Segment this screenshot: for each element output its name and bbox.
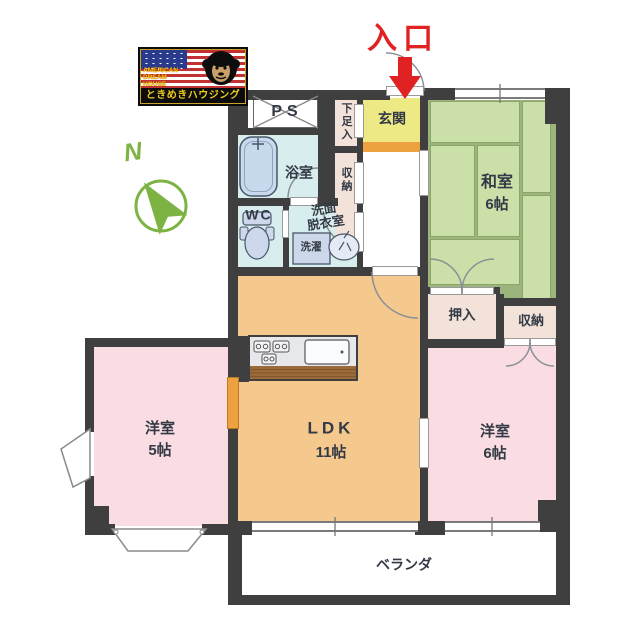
western6-door bbox=[419, 418, 429, 468]
genkan-label: 玄関 bbox=[378, 111, 406, 126]
wall bbox=[420, 339, 504, 348]
entrance-label: 入口 bbox=[367, 23, 439, 56]
wall bbox=[420, 196, 428, 295]
wall bbox=[538, 500, 556, 532]
wall bbox=[556, 521, 570, 605]
window-ldk-veranda bbox=[252, 521, 418, 532]
washitsu-size: 6帖 bbox=[485, 197, 508, 214]
genkan-step bbox=[359, 142, 420, 152]
wc-label: WC bbox=[245, 207, 272, 222]
storage-door-right bbox=[530, 338, 556, 346]
western5-label: 洋室 bbox=[145, 421, 175, 438]
ldk-size: 11帖 bbox=[316, 445, 347, 462]
wall bbox=[335, 146, 357, 153]
wall bbox=[238, 336, 249, 382]
western5-size: 5帖 bbox=[148, 443, 171, 460]
wall bbox=[496, 298, 570, 306]
wall bbox=[420, 96, 428, 150]
flag-text-line: HOUSE bbox=[143, 81, 166, 88]
wall bbox=[228, 90, 238, 535]
floor-plan: 入口 N PS 浴室 下足入 収納 玄関 WC 洗面 脱衣室 洗濯 和室 6帖 … bbox=[0, 0, 640, 640]
gorilla-mascot-icon bbox=[197, 50, 243, 88]
wc-door bbox=[282, 210, 289, 238]
window-western6-veranda bbox=[445, 521, 540, 532]
wall bbox=[85, 338, 238, 347]
oshiire-door-left bbox=[430, 287, 462, 295]
wall bbox=[556, 118, 570, 532]
ldk-label: LDK bbox=[308, 420, 355, 439]
hall-storage-door bbox=[354, 162, 364, 204]
storage-door-left bbox=[504, 338, 530, 346]
agency-name-band: ときめきハウジング bbox=[141, 89, 245, 103]
wall bbox=[85, 338, 94, 432]
wall bbox=[318, 90, 335, 206]
flag-text-line: DREAM bbox=[143, 74, 167, 81]
agency-logo: AMERICAN DREAM HOUSE ときめきハウジング bbox=[138, 47, 248, 106]
washroom-label: 洗面 脱衣室 bbox=[304, 200, 345, 233]
laundry-label: 洗濯 bbox=[301, 242, 322, 254]
bathroom-label: 浴室 bbox=[285, 165, 313, 180]
compass-icon bbox=[136, 181, 188, 235]
tatami-mat bbox=[430, 101, 520, 143]
ldk-opening bbox=[372, 266, 418, 276]
us-flag: AMERICAN DREAM HOUSE bbox=[141, 50, 245, 88]
tatami-mat bbox=[522, 195, 551, 301]
agency-logo-inner: AMERICAN DREAM HOUSE ときめきハウジング bbox=[140, 49, 246, 104]
shoe-cabinet-label: 下足入 bbox=[340, 103, 352, 142]
veranda-label: ベランダ bbox=[376, 557, 432, 572]
hall-storage-label: 収納 bbox=[340, 167, 352, 193]
western6-label: 洋室 bbox=[480, 424, 510, 441]
window-washitsu-top bbox=[455, 88, 545, 99]
oshiire-door-right bbox=[462, 287, 494, 295]
tatami-mat bbox=[430, 145, 475, 237]
ps-label: PS bbox=[271, 103, 302, 121]
wall bbox=[228, 595, 570, 605]
shoe-cabinet-door bbox=[354, 104, 364, 138]
oshiire-label: 押入 bbox=[449, 309, 476, 324]
room-ldk bbox=[238, 276, 420, 525]
hallway bbox=[363, 152, 420, 267]
wall bbox=[85, 506, 109, 526]
tatami-mat bbox=[430, 239, 520, 285]
bedroom-storage-label: 収納 bbox=[518, 314, 544, 328]
washroom-door bbox=[354, 212, 364, 252]
wall bbox=[415, 521, 445, 535]
flag-text-line: AMERICAN bbox=[143, 67, 178, 74]
compass-n-label: N bbox=[122, 138, 144, 168]
washitsu-sliding-door bbox=[419, 150, 429, 196]
wall bbox=[85, 524, 115, 535]
wall bbox=[238, 128, 335, 135]
wall bbox=[420, 295, 428, 418]
bay-window-bottom bbox=[112, 529, 206, 551]
western6-size: 6帖 bbox=[483, 446, 506, 463]
entrance-door-panel bbox=[386, 86, 424, 96]
washitsu-label: 和室 bbox=[481, 174, 513, 192]
western5-sliding-door bbox=[227, 377, 239, 429]
